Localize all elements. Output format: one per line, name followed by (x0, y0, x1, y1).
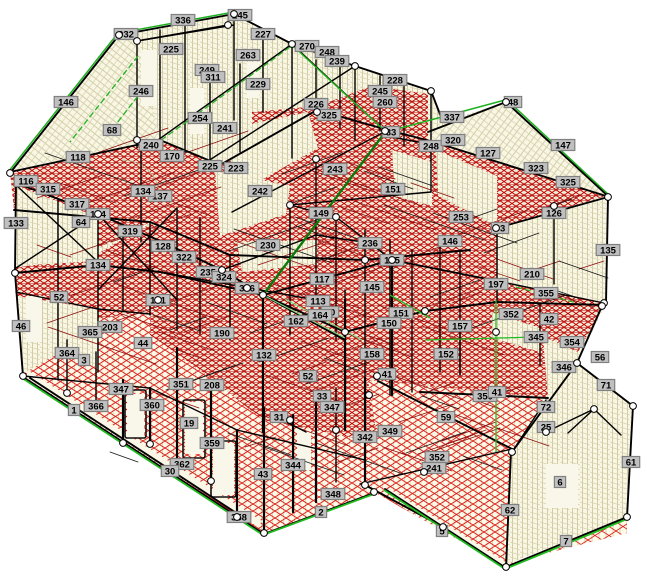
svg-text:336: 336 (175, 15, 191, 26)
svg-text:134: 134 (90, 260, 107, 271)
svg-text:132: 132 (256, 350, 272, 361)
svg-text:52: 52 (303, 371, 314, 382)
svg-text:170: 170 (164, 151, 180, 162)
svg-text:351: 351 (173, 379, 190, 390)
svg-text:347: 347 (113, 384, 129, 395)
svg-text:270: 270 (299, 41, 315, 52)
svg-text:151: 151 (385, 184, 402, 195)
svg-text:210: 210 (524, 269, 540, 280)
svg-text:33: 33 (317, 391, 328, 402)
svg-text:118: 118 (70, 152, 85, 163)
svg-text:158: 158 (364, 349, 380, 360)
svg-text:320: 320 (445, 135, 461, 146)
svg-text:71: 71 (601, 380, 612, 391)
svg-text:344: 344 (285, 460, 302, 471)
svg-text:133: 133 (8, 218, 24, 229)
svg-text:360: 360 (144, 400, 160, 411)
svg-text:348: 348 (325, 489, 341, 500)
svg-text:152: 152 (438, 349, 454, 360)
svg-text:364: 364 (59, 348, 76, 359)
svg-text:150: 150 (381, 318, 397, 329)
svg-text:128: 128 (155, 241, 171, 252)
svg-text:345: 345 (528, 332, 545, 343)
svg-text:347: 347 (324, 402, 340, 413)
svg-text:146: 146 (442, 236, 458, 247)
svg-text:52: 52 (54, 292, 65, 303)
svg-text:68: 68 (107, 125, 118, 136)
svg-text:355: 355 (538, 288, 555, 299)
svg-text:228: 228 (387, 75, 403, 86)
svg-text:72: 72 (541, 402, 552, 413)
svg-text:1: 1 (71, 405, 77, 416)
svg-text:359: 359 (204, 438, 220, 449)
svg-text:19: 19 (184, 418, 195, 429)
svg-text:352: 352 (429, 452, 445, 463)
svg-text:319: 319 (122, 226, 138, 237)
svg-text:254: 254 (192, 113, 209, 124)
svg-text:41: 41 (382, 369, 393, 380)
svg-text:346: 346 (556, 362, 572, 373)
svg-text:322: 322 (176, 252, 192, 263)
svg-text:311: 311 (205, 72, 221, 83)
svg-text:366: 366 (88, 401, 104, 412)
svg-text:41: 41 (492, 387, 503, 398)
svg-text:44: 44 (138, 338, 149, 349)
svg-text:315: 315 (40, 184, 57, 195)
svg-text:61: 61 (626, 457, 637, 468)
svg-text:162: 162 (288, 316, 304, 327)
svg-text:3: 3 (81, 355, 86, 366)
svg-text:229: 229 (250, 79, 266, 90)
svg-text:147: 147 (555, 140, 571, 151)
svg-text:365: 365 (82, 327, 99, 338)
svg-text:242: 242 (252, 186, 268, 197)
svg-text:2: 2 (318, 507, 323, 518)
svg-text:208: 208 (204, 380, 220, 391)
svg-text:116: 116 (18, 176, 33, 187)
svg-text:197: 197 (488, 279, 504, 290)
svg-text:126: 126 (546, 208, 562, 219)
svg-text:223: 223 (228, 163, 244, 174)
svg-text:253: 253 (453, 212, 469, 223)
svg-text:225: 225 (202, 161, 219, 172)
svg-text:117: 117 (314, 274, 329, 285)
svg-text:227: 227 (255, 29, 271, 40)
svg-text:241: 241 (217, 123, 234, 134)
svg-text:127: 127 (480, 148, 496, 159)
svg-text:6: 6 (557, 477, 562, 488)
svg-text:324: 324 (216, 272, 233, 283)
svg-text:260: 260 (377, 97, 393, 108)
svg-text:245: 245 (372, 86, 389, 97)
svg-text:31: 31 (274, 412, 285, 423)
svg-text:248: 248 (423, 141, 439, 152)
svg-text:352: 352 (503, 309, 519, 320)
svg-text:246: 246 (133, 86, 149, 97)
svg-text:342: 342 (357, 432, 373, 443)
svg-text:190: 190 (214, 328, 230, 339)
svg-text:241: 241 (426, 463, 443, 474)
svg-text:149: 149 (313, 208, 329, 219)
svg-text:7: 7 (563, 536, 568, 547)
svg-text:230: 230 (260, 240, 276, 251)
svg-text:239: 239 (329, 56, 345, 67)
svg-text:135: 135 (600, 245, 617, 256)
svg-text:240: 240 (143, 140, 159, 151)
svg-text:349: 349 (382, 426, 398, 437)
svg-text:325: 325 (560, 177, 577, 188)
svg-text:146: 146 (58, 97, 74, 108)
svg-text:164: 164 (312, 310, 329, 321)
svg-text:145: 145 (364, 282, 381, 293)
svg-text:263: 263 (240, 50, 256, 61)
svg-text:56: 56 (595, 352, 606, 363)
svg-text:134: 134 (135, 186, 152, 197)
svg-text:337: 337 (444, 112, 460, 123)
svg-text:317: 317 (69, 199, 85, 210)
svg-text:157: 157 (452, 321, 468, 332)
svg-text:43: 43 (258, 469, 269, 480)
svg-text:325: 325 (321, 110, 338, 121)
svg-text:59: 59 (441, 412, 452, 423)
svg-text:323: 323 (528, 163, 544, 174)
svg-text:64: 64 (76, 217, 87, 228)
svg-text:243: 243 (327, 164, 343, 175)
svg-text:42: 42 (544, 314, 555, 325)
svg-text:236: 236 (362, 238, 378, 249)
svg-text:113: 113 (310, 296, 325, 307)
svg-text:30: 30 (165, 466, 176, 477)
svg-text:354: 354 (564, 337, 581, 348)
svg-text:46: 46 (16, 321, 27, 332)
svg-text:62: 62 (505, 505, 516, 516)
svg-text:225: 225 (163, 44, 180, 55)
svg-text:203: 203 (102, 322, 118, 333)
